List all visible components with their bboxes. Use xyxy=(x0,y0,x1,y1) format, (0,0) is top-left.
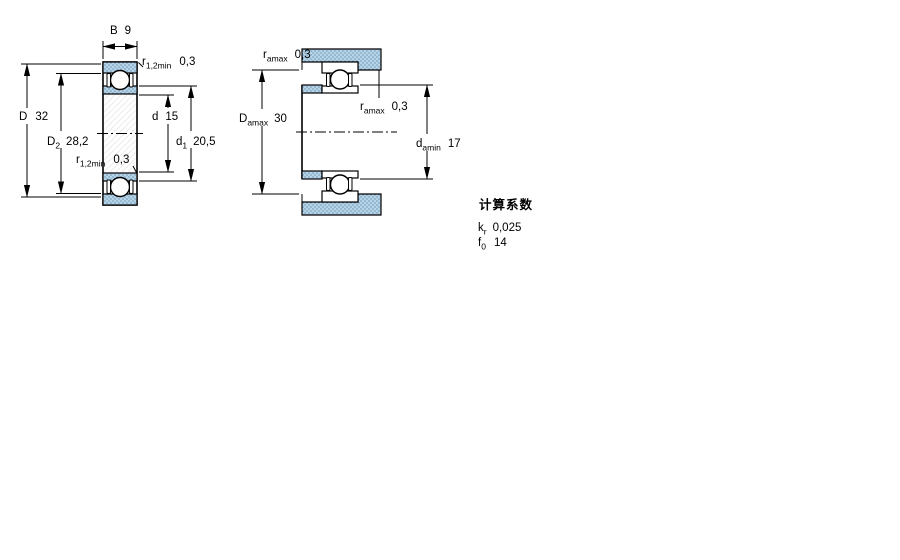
dim-label-bore-diameter: d15 xyxy=(152,111,178,123)
shield-left-top xyxy=(107,74,111,88)
right-mounting-view xyxy=(296,49,397,215)
shield-left-bottom xyxy=(107,180,111,194)
factor-f0: f014 xyxy=(478,237,507,252)
dim-label-r-top: r1,2min0,3 xyxy=(142,56,195,71)
factor-kr: kr0,025 xyxy=(478,222,521,237)
shield-right-bottom xyxy=(130,180,134,194)
left-bearing-cross-section xyxy=(97,62,143,205)
shield-left-top-right xyxy=(327,74,331,87)
calculation-factors-title: 计算系数 xyxy=(479,197,533,212)
ball-top xyxy=(111,71,130,90)
dim-label-width: B9 xyxy=(110,25,131,37)
ball-bottom-right xyxy=(331,175,350,194)
ball-top-right xyxy=(331,70,350,89)
shield-left-bottom-right xyxy=(327,178,331,191)
ball-bottom xyxy=(111,178,130,197)
dim-label-shoulder-diameter: d120,5 xyxy=(176,136,216,151)
shaft-shoulder-top xyxy=(302,85,322,93)
shield-right-top xyxy=(130,74,134,88)
calculation-factors: 计算系数 kr0,025 f014 xyxy=(478,197,533,252)
dim-label-recess-diameter: D228,2 xyxy=(47,136,88,151)
shield-right-top-right xyxy=(349,74,353,87)
technical-drawing-page: B9 r1,2min0,3 D32 D228,2 d15 d120,5 r1,2… xyxy=(0,0,900,560)
shield-right-bottom-right xyxy=(349,178,353,191)
bearing-drawing-canvas: B9 r1,2min0,3 D32 D228,2 d15 d120,5 r1,2… xyxy=(0,0,900,560)
shaft-shoulder-bottom xyxy=(302,171,322,179)
